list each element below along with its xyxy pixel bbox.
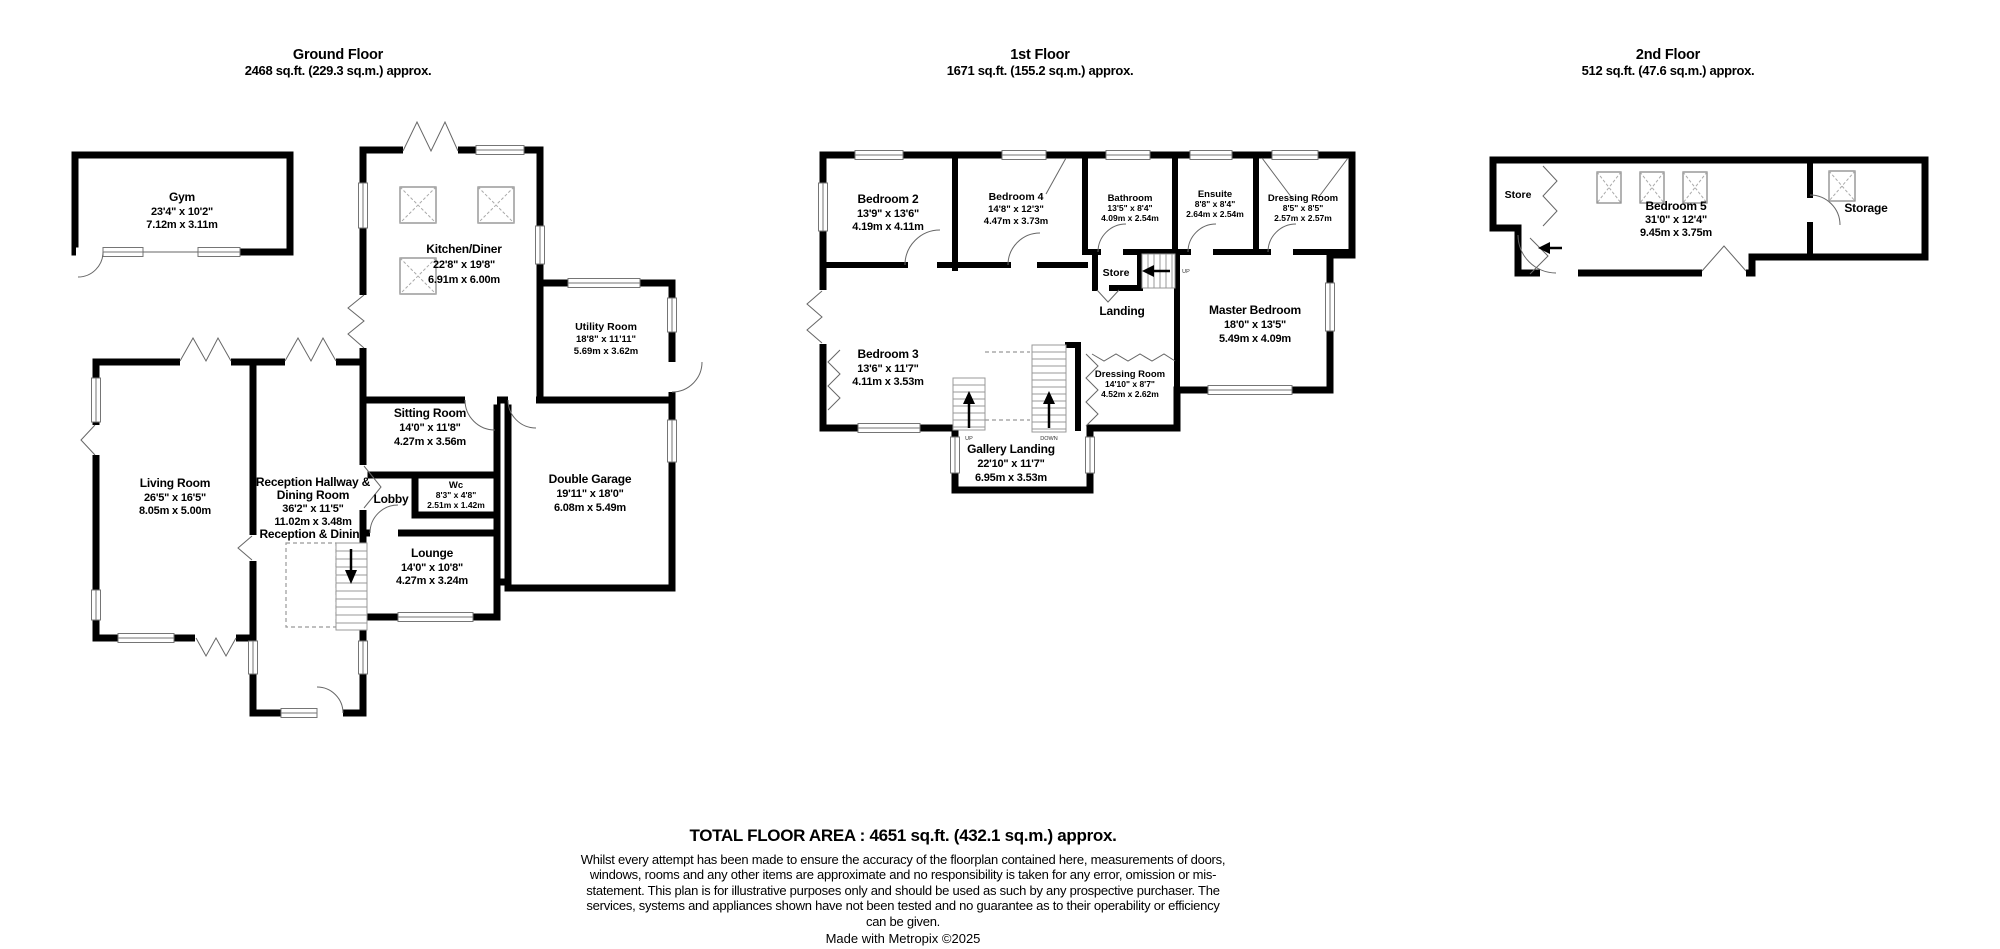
bedroom2-name: Bedroom 2 — [858, 192, 919, 206]
bathroom-metric: 4.09m x 2.54m — [1101, 213, 1159, 223]
dressing2-imperial: 14'10" x 8'7" — [1105, 379, 1155, 389]
room-label-storage: Storage — [1844, 201, 1888, 215]
gym-name: Gym — [169, 190, 195, 204]
room-label-kitchen: Kitchen/Diner 22'8" x 19'8" 6.91m x 6.00… — [426, 242, 502, 286]
ensuite-imperial: 8'8" x 8'4" — [1195, 199, 1235, 209]
reception-note: Reception & Dining — [259, 527, 366, 541]
dressing1-imperial: 8'5" x 8'5" — [1283, 203, 1323, 213]
room-label-bedroom2: Bedroom 2 13'9" x 13'6" 4.19m x 4.11m — [852, 192, 924, 233]
store-second-name: Store — [1505, 189, 1532, 201]
sitting-name: Sitting Room — [394, 406, 466, 420]
lobby-name: Lobby — [374, 492, 410, 506]
ground-staircase — [286, 543, 367, 630]
bedroom4-imperial: 14'8" x 12'3" — [988, 204, 1044, 215]
utility-name: Utility Room — [575, 321, 637, 333]
gym-metric: 7.12m x 3.11m — [146, 219, 218, 231]
room-label-bedroom5: Bedroom 5 31'0" x 12'4" 9.45m x 3.75m — [1640, 199, 1712, 239]
room-label-garage: Double Garage 19'11" x 18'0" 6.08m x 5.4… — [549, 472, 632, 514]
bedroom5-metric: 9.45m x 3.75m — [1640, 227, 1712, 239]
garage-imperial: 19'11" x 18'0" — [556, 488, 623, 500]
room-label-lounge: Lounge 14'0" x 10'8" 4.27m x 3.24m — [396, 546, 468, 587]
wc-metric: 2.51m x 1.42m — [427, 500, 485, 510]
room-label-living: Living Room 26'5" x 16'5" 8.05m x 5.00m — [139, 476, 211, 517]
room-label-gallery: Gallery Landing 22'10" x 11'7" 6.95m x 3… — [967, 442, 1055, 484]
ground-floor-plan: Gym 23'4" x 10'2" 7.12m x 3.11m Kitchen/… — [75, 122, 702, 718]
disclaimer-text: Whilst every attempt has been made to en… — [578, 852, 1228, 929]
gym-imperial: 23'4" x 10'2" — [151, 206, 213, 218]
reception-name2: Dining Room — [277, 488, 349, 502]
room-label-sitting: Sitting Room 14'0" x 11'8" 4.27m x 3.56m — [394, 406, 467, 448]
room-label-store-second: Store — [1505, 189, 1532, 201]
room-label-wc: Wc 8'3" x 4'8" 2.51m x 1.42m — [427, 480, 485, 510]
lounge-metric: 4.27m x 3.24m — [396, 575, 468, 587]
ensuite-metric: 2.64m x 2.54m — [1186, 209, 1244, 219]
room-label-store-first: Store — [1103, 267, 1130, 279]
room-label-bathroom: Bathroom 13'5" x 8'4" 4.09m x 2.54m — [1101, 193, 1159, 223]
room-label-landing: Landing — [1099, 304, 1144, 318]
room-label-utility: Utility Room 18'8" x 11'11" 5.69m x 3.62… — [574, 321, 638, 357]
credit-text: Made with Metropix ©2025 — [553, 931, 1253, 946]
floorplan: Ground Floor 2468 sq.ft. (229.3 sq.m.) a… — [0, 0, 2000, 949]
lounge-name: Lounge — [411, 546, 454, 560]
reception-name1: Reception Hallway & — [256, 475, 371, 489]
room-label-bedroom3: Bedroom 3 13'6" x 11'7" 4.11m x 3.53m — [852, 347, 924, 388]
bedroom4-name: Bedroom 4 — [989, 191, 1044, 203]
room-label-reception: Reception Hallway & Dining Room 36'2" x … — [256, 475, 371, 541]
kitchen-metric: 6.91m x 6.00m — [428, 274, 500, 286]
gallery-name: Gallery Landing — [967, 442, 1055, 456]
master-metric: 5.49m x 4.09m — [1219, 333, 1291, 345]
dressing2-metric: 4.52m x 2.62m — [1101, 389, 1159, 399]
room-label-lobby: Lobby — [374, 492, 410, 506]
garage-metric: 6.08m x 5.49m — [554, 502, 626, 514]
master-imperial: 18'0" x 13'5" — [1224, 319, 1286, 331]
utility-imperial: 18'8" x 11'11" — [576, 334, 636, 345]
living-metric: 8.05m x 5.00m — [139, 505, 211, 517]
kitchen-imperial: 22'8" x 19'8" — [433, 259, 495, 271]
store-first-name: Store — [1103, 267, 1130, 279]
bedroom3-name: Bedroom 3 — [858, 347, 919, 361]
master-name: Master Bedroom — [1209, 303, 1301, 317]
dressing1-metric: 2.57m x 2.57m — [1274, 213, 1332, 223]
kitchen-name: Kitchen/Diner — [426, 242, 502, 256]
bedroom5-name: Bedroom 5 — [1646, 199, 1707, 213]
living-name: Living Room — [140, 476, 210, 490]
gallery-metric: 6.95m x 3.53m — [975, 472, 1047, 484]
sitting-imperial: 14'0" x 11'8" — [399, 422, 460, 434]
second-floor-plan: Store Bedroom 5 31'0" x 12'4" 9.45m x 3.… — [1493, 160, 1925, 278]
bedroom2-imperial: 13'9" x 13'6" — [857, 208, 919, 220]
garage-name: Double Garage — [549, 472, 632, 486]
gallery-imperial: 22'10" x 11'7" — [977, 458, 1044, 470]
room-label-dressing2: Dressing Room 14'10" x 8'7" 4.52m x 2.62… — [1095, 369, 1165, 399]
room-label-bedroom4: Bedroom 4 14'8" x 12'3" 4.47m x 3.73m — [984, 191, 1048, 227]
wc-imperial: 8'3" x 4'8" — [436, 490, 476, 500]
living-imperial: 26'5" x 16'5" — [144, 492, 206, 504]
bedroom3-imperial: 13'6" x 11'7" — [857, 363, 918, 375]
sitting-metric: 4.27m x 3.56m — [394, 436, 466, 448]
utility-metric: 5.69m x 3.62m — [574, 346, 638, 357]
total-floor-area: TOTAL FLOOR AREA : 4651 sq.ft. (432.1 sq… — [553, 826, 1253, 846]
bedroom2-metric: 4.19m x 4.11m — [852, 221, 924, 233]
floorplan-drawing: Gym 23'4" x 10'2" 7.12m x 3.11m Kitchen/… — [0, 0, 2000, 949]
lounge-imperial: 14'0" x 10'8" — [401, 562, 463, 574]
reception-imperial: 36'2" x 11'5" — [282, 503, 343, 515]
first-floor-plan: UP DOWN UP Bedroom 2 13'9" x 13'6" 4.19m… — [807, 151, 1352, 491]
bedroom3-metric: 4.11m x 3.53m — [852, 376, 924, 388]
bathroom-imperial: 13'5" x 8'4" — [1107, 203, 1152, 213]
landing-name: Landing — [1099, 304, 1144, 318]
storage-name: Storage — [1844, 201, 1888, 215]
up-label: UP — [1182, 269, 1190, 275]
bedroom4-metric: 4.47m x 3.73m — [984, 216, 1048, 227]
bedroom5-imperial: 31'0" x 12'4" — [1645, 214, 1707, 226]
